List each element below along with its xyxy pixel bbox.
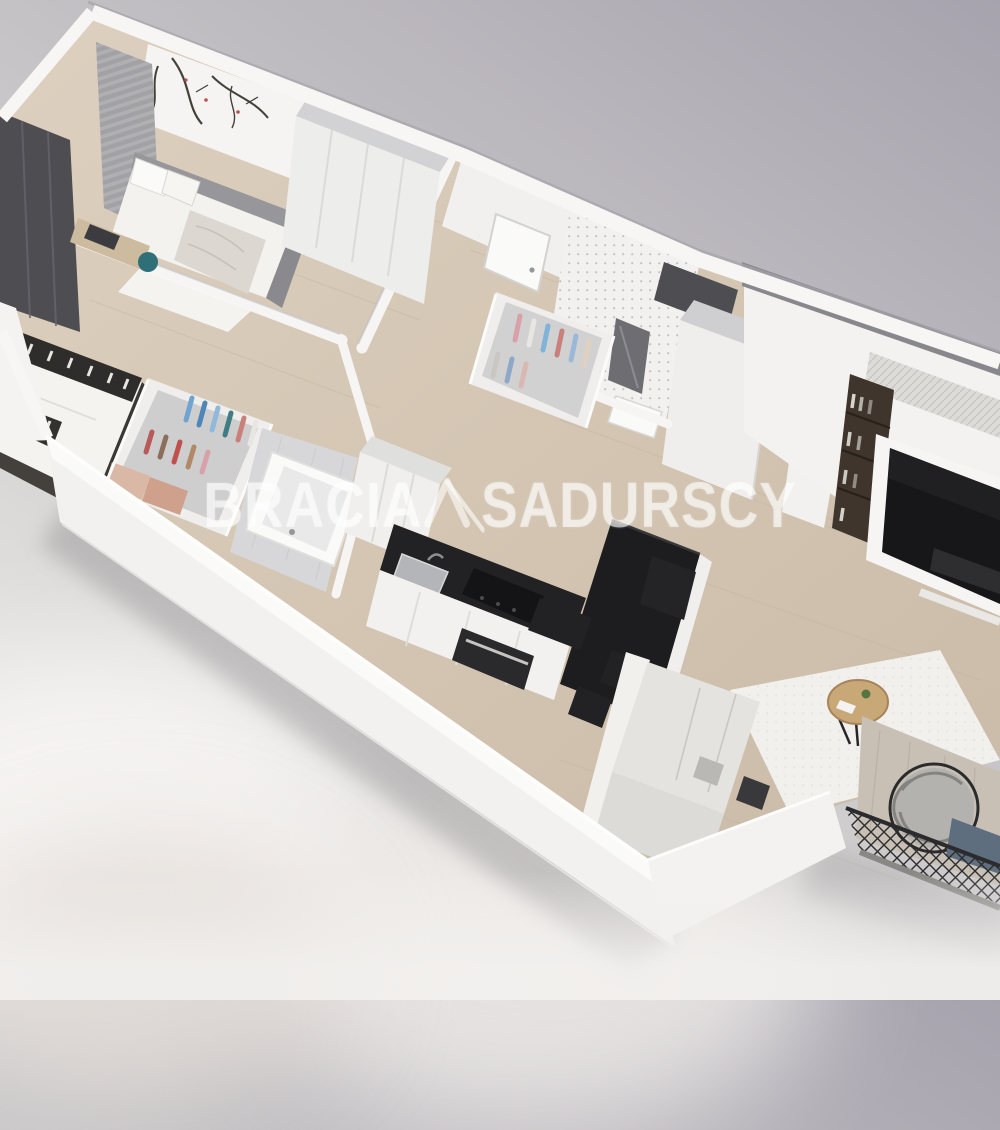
dark-curtain-panel — [0, 112, 80, 332]
plant — [862, 690, 871, 699]
bottom-fade — [0, 872, 1000, 1000]
door-handle — [529, 267, 534, 272]
apartment-3d-render: { "watermark": { "brand_first": "BRACIA"… — [0, 0, 1000, 1000]
teal-chair — [138, 252, 158, 272]
watermark-brand-first: BRACIA — [203, 468, 422, 542]
brand-logo-icon — [421, 471, 485, 533]
watermark: BRACIA SADURSCY — [203, 468, 796, 542]
watermark-brand-second: SADURSCY — [481, 468, 797, 542]
